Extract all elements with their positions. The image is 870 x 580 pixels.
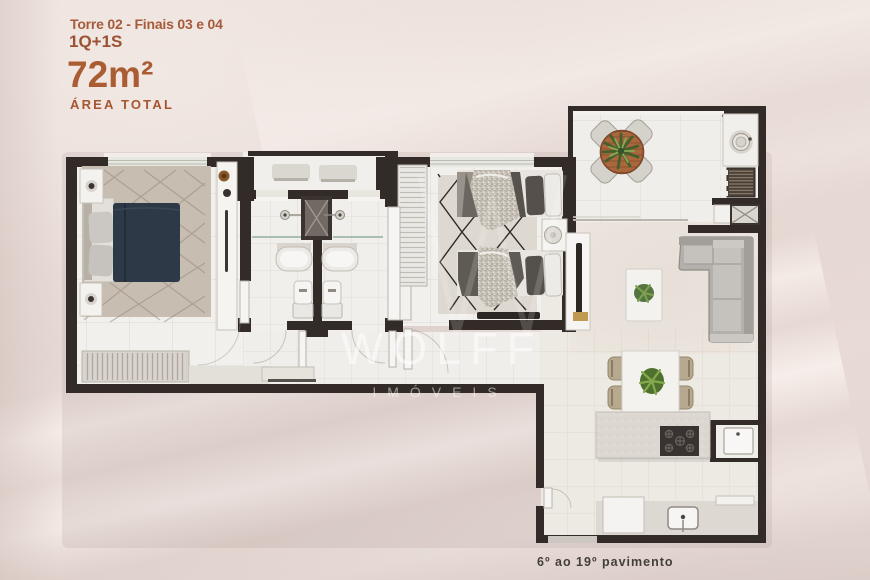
svg-text:WOLFF: WOLFF: [341, 323, 543, 374]
svg-text:IMÓVEIS: IMÓVEIS: [372, 384, 507, 400]
